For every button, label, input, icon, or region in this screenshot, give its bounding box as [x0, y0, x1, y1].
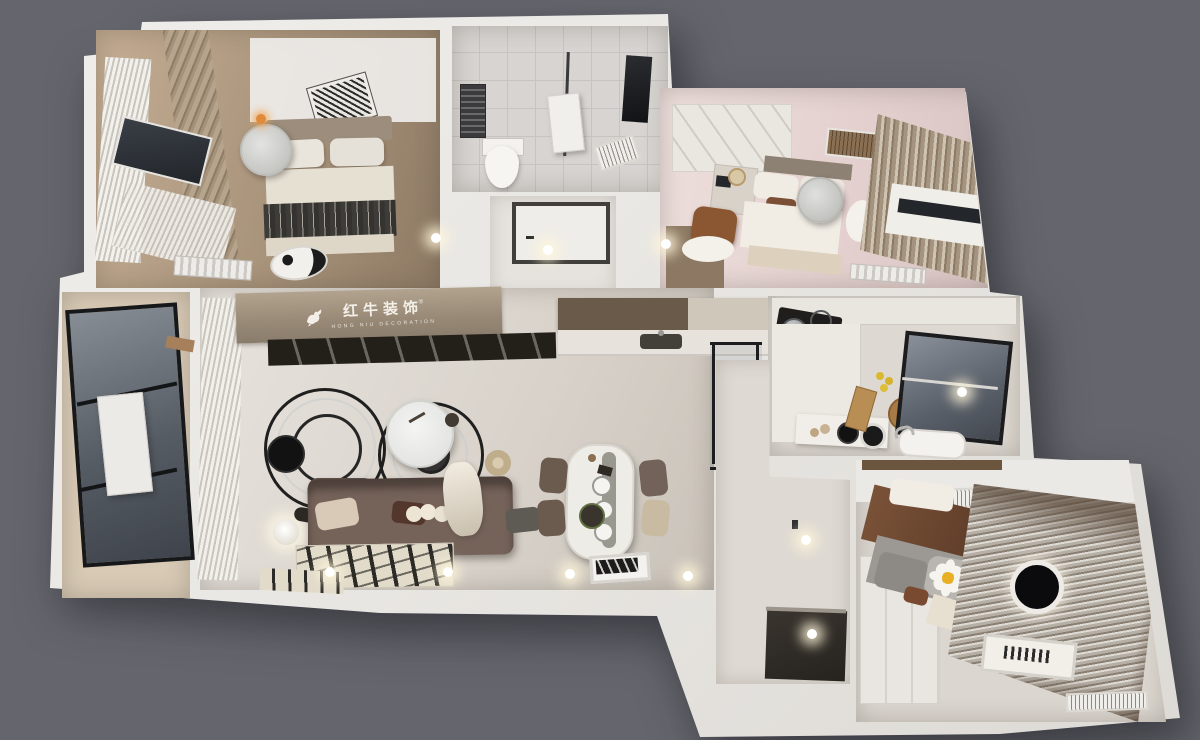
wood-vent-icon — [825, 127, 878, 160]
scene-background: 红牛装饰® HONG NIU DECORATION — [0, 0, 1200, 740]
kitchen — [768, 296, 1020, 456]
towel-radiator — [460, 84, 486, 138]
brand-logo: 红牛装饰® HONG NIU DECORATION — [302, 299, 436, 332]
table-cup — [588, 454, 596, 462]
bull-icon — [302, 307, 325, 328]
lemon — [880, 384, 888, 392]
shower-panel — [547, 92, 585, 153]
bedside-lamp — [256, 114, 266, 124]
plate — [592, 476, 612, 496]
kitchen-faucet — [658, 330, 664, 336]
wall-light — [801, 535, 811, 545]
downlight — [325, 567, 335, 577]
floor-lamp-sphere — [273, 519, 299, 545]
downlight — [443, 567, 453, 577]
wall-clock — [267, 435, 305, 473]
kitchen-upper-cabinets — [558, 298, 782, 330]
wall-hook — [792, 520, 798, 529]
hallway — [490, 196, 616, 296]
downlight — [683, 571, 693, 581]
dining-chair — [640, 499, 670, 537]
coffee-table — [386, 400, 454, 468]
registered-mark: ® — [418, 299, 423, 305]
table-plant — [579, 503, 605, 529]
door-handle — [526, 236, 534, 239]
brand-name: 红牛装饰® — [342, 299, 423, 321]
rattan-wall-plate — [485, 450, 511, 476]
floor-vent — [1066, 691, 1149, 713]
entry-dark-floor — [765, 609, 847, 682]
bed-pillow — [330, 138, 384, 167]
bathroom — [452, 26, 668, 192]
ceiling-lamp2 — [797, 177, 843, 223]
toilet-bowl — [485, 146, 519, 188]
cork-lid — [820, 424, 830, 434]
sofa-pillow-gray — [505, 506, 541, 533]
desk-tray — [728, 168, 746, 186]
downlight — [565, 569, 575, 579]
bedroom-three — [856, 460, 1166, 722]
side-vase — [445, 413, 459, 427]
downlight — [543, 245, 553, 255]
kitchen-sink — [640, 334, 682, 349]
downlight — [957, 387, 967, 397]
brand-text-block: 红牛装饰® HONG NIU DECORATION — [330, 299, 436, 330]
wardrobe3-wood-top — [862, 460, 1002, 470]
art-frame-print — [596, 558, 639, 575]
shower-head — [593, 134, 641, 172]
glass-partition-frame — [712, 342, 715, 464]
fluffy-cushion — [682, 236, 734, 262]
downlight — [431, 233, 441, 243]
dining-chair — [537, 499, 566, 537]
downlight — [661, 239, 671, 249]
dining-chair — [638, 459, 669, 498]
kids-bedroom — [660, 88, 988, 288]
wall-light — [807, 629, 817, 639]
radiator — [173, 255, 252, 280]
living-room: 红牛装饰® HONG NIU DECORATION — [200, 288, 714, 590]
dining-chair — [539, 457, 569, 494]
lemon — [876, 372, 884, 380]
radiator2 — [850, 263, 927, 284]
cork-lid — [810, 428, 819, 437]
ceiling-lamp — [240, 124, 292, 176]
master-bedroom — [96, 30, 440, 288]
balcony — [62, 292, 190, 598]
black-ceiling-lamp — [1010, 560, 1064, 614]
interior-door-frame — [512, 202, 610, 264]
bathroom-mirror — [622, 55, 653, 123]
